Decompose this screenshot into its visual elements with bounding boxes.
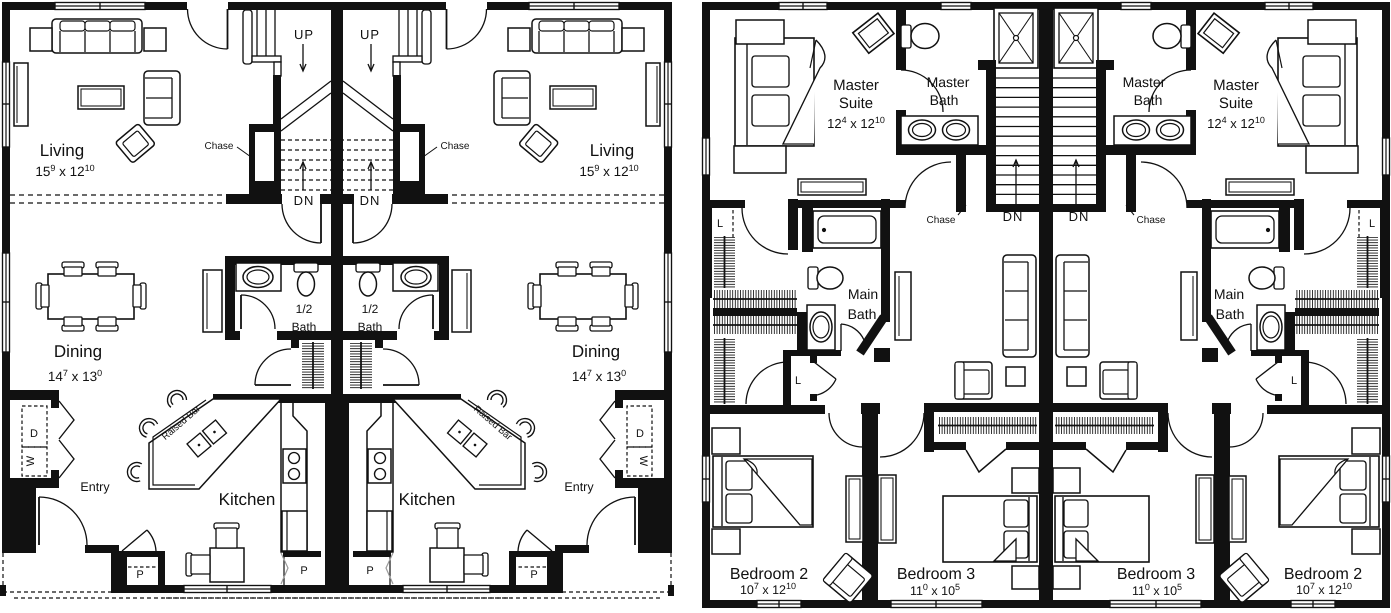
- svg-text:W: W: [637, 456, 649, 467]
- svg-text:Bedroom 3: Bedroom 3: [1117, 566, 1195, 583]
- svg-text:Living: Living: [590, 141, 634, 160]
- svg-text:Chase: Chase: [1137, 215, 1166, 226]
- svg-text:Dining: Dining: [572, 342, 620, 361]
- svg-text:UP: UP: [294, 27, 314, 42]
- svg-text:Main: Main: [848, 286, 878, 302]
- svg-text:Bedroom 2: Bedroom 2: [730, 566, 808, 583]
- svg-text:P: P: [300, 565, 307, 577]
- svg-text:Bath: Bath: [848, 306, 877, 322]
- svg-text:1/2: 1/2: [296, 302, 313, 316]
- svg-text:Living: Living: [40, 141, 84, 160]
- svg-text:Kitchen: Kitchen: [219, 490, 276, 509]
- svg-text:L: L: [1291, 375, 1297, 387]
- svg-text:L: L: [795, 375, 801, 387]
- svg-text:DN: DN: [294, 193, 315, 208]
- svg-text:Master: Master: [927, 74, 970, 90]
- svg-text:110 x 105: 110 x 105: [1132, 582, 1182, 598]
- svg-text:Bath: Bath: [1216, 306, 1245, 322]
- svg-text:110 x 105: 110 x 105: [910, 582, 960, 598]
- svg-text:Suite: Suite: [1219, 95, 1253, 112]
- svg-text:W: W: [25, 455, 37, 466]
- svg-text:Master: Master: [1213, 77, 1259, 94]
- svg-text:Bath: Bath: [358, 320, 383, 334]
- svg-text:Entry: Entry: [80, 480, 110, 494]
- svg-text:Main: Main: [1214, 286, 1244, 302]
- svg-text:D: D: [30, 428, 38, 440]
- svg-text:Master: Master: [1123, 74, 1166, 90]
- svg-text:147 x 130: 147 x 130: [572, 368, 626, 384]
- svg-text:UP: UP: [360, 27, 380, 42]
- svg-text:DN: DN: [360, 193, 381, 208]
- svg-text:D: D: [636, 428, 644, 440]
- svg-text:DN: DN: [1003, 209, 1024, 224]
- svg-text:P: P: [136, 569, 143, 581]
- svg-text:1/2: 1/2: [362, 302, 379, 316]
- svg-text:Chase: Chase: [927, 215, 956, 226]
- svg-text:Bath: Bath: [292, 320, 317, 334]
- svg-text:Dining: Dining: [54, 342, 102, 361]
- svg-text:Suite: Suite: [839, 95, 873, 112]
- svg-text:L: L: [717, 218, 723, 230]
- svg-text:Chase: Chase: [441, 141, 470, 152]
- svg-text:147 x 130: 147 x 130: [48, 368, 102, 384]
- svg-text:Master: Master: [833, 77, 879, 94]
- svg-text:Chase: Chase: [205, 141, 234, 152]
- svg-text:L: L: [1369, 218, 1375, 230]
- svg-text:P: P: [366, 565, 373, 577]
- svg-text:Kitchen: Kitchen: [399, 490, 456, 509]
- svg-text:Bath: Bath: [930, 92, 959, 108]
- svg-text:P: P: [530, 569, 537, 581]
- svg-text:Bath: Bath: [1134, 92, 1163, 108]
- svg-text:Entry: Entry: [564, 480, 594, 494]
- svg-text:DN: DN: [1069, 209, 1090, 224]
- svg-text:Bedroom 3: Bedroom 3: [897, 566, 975, 583]
